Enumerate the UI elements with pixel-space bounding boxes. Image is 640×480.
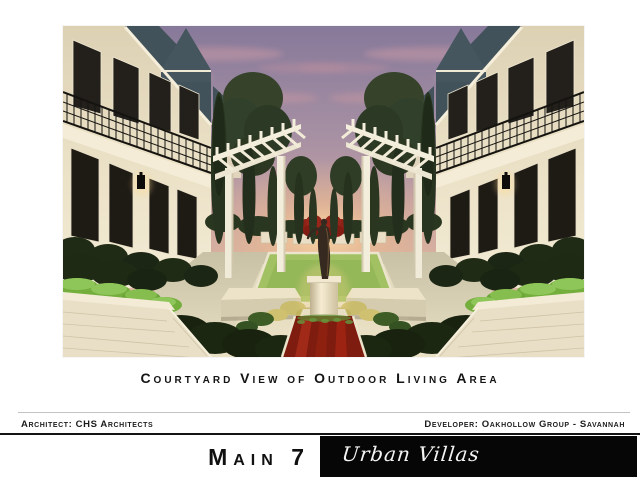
image-caption: Courtyard View of Outdoor Living Area (0, 370, 640, 386)
project-name: Main 7 (0, 442, 310, 472)
developer-credit: Developer: Oakhollow Group - Savannah (424, 419, 625, 430)
footer-banner: Urban Villas (320, 436, 637, 477)
courtyard-rendering (63, 26, 584, 357)
presentation-board: Courtyard View of Outdoor Living Area Ar… (0, 0, 640, 480)
footer-divider (0, 433, 640, 435)
project-subtitle: Urban Villas (341, 442, 481, 466)
architect-credit: Architect: CHS Architects (21, 419, 153, 430)
credits-divider (18, 412, 630, 413)
rendering-image (63, 26, 584, 357)
